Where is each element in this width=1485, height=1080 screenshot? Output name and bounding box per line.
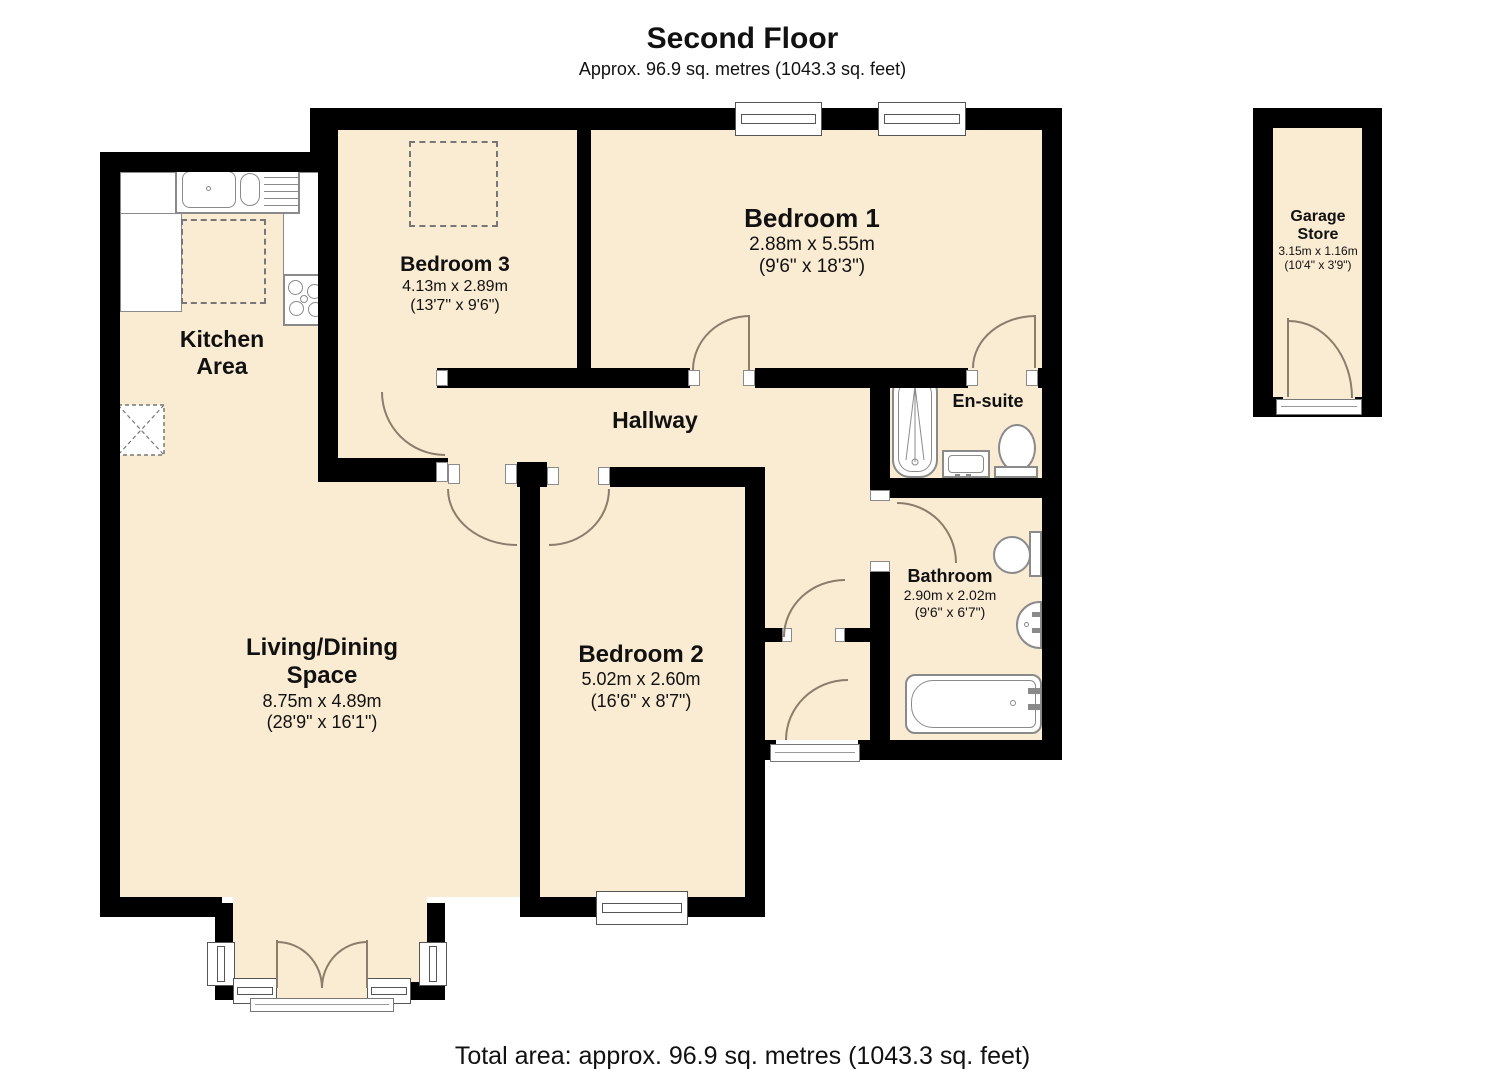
wall bbox=[591, 368, 690, 388]
room-name: Bedroom 3 bbox=[400, 253, 510, 278]
total-area-text: Total area: approx. 96.9 sq. metres (104… bbox=[0, 1042, 1485, 1071]
hob-burner-icon bbox=[289, 301, 304, 316]
sink-drainer-lines bbox=[264, 177, 298, 207]
room-dims-imperial: (13'7" x 9'6") bbox=[400, 297, 510, 316]
ensuite-bath-jets-icon bbox=[898, 380, 932, 472]
kitchen-label: Kitchen Area bbox=[180, 326, 264, 380]
entrance-threshold bbox=[770, 744, 860, 762]
door-jamb bbox=[1026, 370, 1038, 386]
room-dims-metric: 5.02m x 2.60m bbox=[578, 669, 703, 690]
bay-window bbox=[207, 942, 235, 986]
wall bbox=[318, 108, 338, 462]
door-jamb bbox=[743, 370, 755, 386]
tub-drain-icon bbox=[1010, 700, 1016, 706]
window-glazing bbox=[217, 946, 225, 983]
kitchen-dashed-unit bbox=[181, 219, 266, 304]
wall bbox=[870, 563, 890, 760]
hob-burner-icon bbox=[288, 280, 303, 295]
bay-door-threshold bbox=[250, 998, 394, 1012]
bathroom-door-gap bbox=[866, 500, 892, 563]
hob-center-icon bbox=[300, 295, 308, 303]
tap-icon bbox=[1028, 704, 1040, 710]
wall bbox=[845, 628, 870, 642]
room-name: Kitchen bbox=[180, 326, 264, 353]
living-label: Living/Dining Space 8.75m x 4.89m (28'9"… bbox=[246, 634, 398, 733]
bedroom1-label: Bedroom 1 2.88m x 5.55m (9'6" x 18'3") bbox=[744, 203, 880, 278]
door-jamb bbox=[870, 561, 890, 572]
room-name: En-suite bbox=[952, 391, 1023, 412]
door-jamb bbox=[505, 464, 517, 484]
wall bbox=[870, 368, 890, 500]
room-name: Bedroom 2 bbox=[578, 641, 703, 669]
door-jamb bbox=[448, 464, 460, 484]
window-glazing bbox=[429, 946, 437, 983]
wall bbox=[437, 368, 577, 388]
wall bbox=[890, 478, 1042, 498]
wall bbox=[765, 628, 782, 642]
sink-drain-icon bbox=[206, 186, 211, 191]
ensuite-toilet-bowl bbox=[998, 424, 1036, 472]
wall bbox=[100, 152, 330, 172]
garage-threshold bbox=[1276, 399, 1362, 415]
window-glazing bbox=[884, 114, 960, 124]
ensuite-basin-bowl bbox=[948, 455, 984, 473]
room-dims-metric: 2.90m x 2.02m bbox=[904, 587, 997, 604]
room-dims-imperial: (16'6" x 8'7") bbox=[578, 691, 703, 712]
sink-basin-small bbox=[240, 173, 260, 206]
room-dims-metric: 2.88m x 5.55m bbox=[744, 234, 880, 256]
bathroom-tub-inner bbox=[911, 680, 1036, 728]
wall bbox=[100, 152, 120, 917]
bedroom3-label: Bedroom 3 4.13m x 2.89m (13'7" x 9'6") bbox=[400, 253, 510, 316]
wall bbox=[610, 467, 755, 487]
window-glazing bbox=[602, 903, 681, 913]
ensuite-label: En-suite bbox=[952, 391, 1023, 412]
window bbox=[878, 102, 966, 136]
room-dims-imperial: (9'6" x 6'7") bbox=[904, 604, 997, 621]
room-dims-metric: 8.75m x 4.89m bbox=[246, 691, 398, 712]
wall bbox=[745, 467, 765, 917]
room-dims-metric: 4.13m x 2.89m bbox=[400, 278, 510, 297]
wall bbox=[318, 458, 448, 482]
room-name: Hallway bbox=[612, 407, 698, 434]
room-name: Store bbox=[1278, 226, 1357, 244]
bathroom-label: Bathroom 2.90m x 2.02m (9'6" x 6'7") bbox=[904, 566, 997, 620]
door-jamb bbox=[436, 370, 448, 386]
door-jamb bbox=[688, 370, 700, 386]
room-name: Garage bbox=[1278, 208, 1357, 226]
room-dims-imperial: (9'6" x 18'3") bbox=[744, 256, 880, 278]
wall bbox=[1042, 108, 1062, 760]
window bbox=[735, 102, 822, 136]
door-jamb bbox=[870, 490, 890, 501]
wall bbox=[100, 897, 222, 917]
room-name: Area bbox=[180, 353, 264, 380]
room-name: Bathroom bbox=[904, 566, 997, 587]
wall bbox=[755, 368, 968, 388]
room-dims-imperial: (10'4" x 3'9") bbox=[1278, 259, 1357, 273]
door-jamb bbox=[966, 370, 978, 386]
door-jamb bbox=[436, 462, 448, 482]
room-name: Bedroom 1 bbox=[744, 203, 880, 234]
tap-icon bbox=[1028, 688, 1040, 694]
floor-plan-page: Second Floor Approx. 96.9 sq. metres (10… bbox=[0, 0, 1485, 1080]
basin-drain-icon bbox=[1024, 622, 1029, 627]
room-name: Space bbox=[246, 662, 398, 690]
bathroom-toilet-bowl bbox=[993, 536, 1031, 574]
wall bbox=[520, 462, 540, 917]
page-title: Second Floor bbox=[0, 22, 1485, 56]
door-jamb bbox=[547, 467, 559, 485]
room-name: Living/Dining bbox=[246, 634, 398, 662]
room-dims-imperial: (28'9" x 16'1") bbox=[246, 712, 398, 733]
window-glazing bbox=[371, 987, 408, 994]
room-dims-metric: 3.15m x 1.16m bbox=[1278, 245, 1357, 259]
window-glazing bbox=[741, 114, 816, 124]
window bbox=[596, 891, 688, 925]
page-subtitle: Approx. 96.9 sq. metres (1043.3 sq. feet… bbox=[0, 59, 1485, 80]
hallway-label: Hallway bbox=[612, 407, 698, 434]
bedroom2-label: Bedroom 2 5.02m x 2.60m (16'6" x 8'7") bbox=[578, 641, 703, 712]
wall bbox=[577, 108, 591, 388]
boiler-x-icon bbox=[117, 404, 165, 456]
garage-label: Garage Store 3.15m x 1.16m (10'4" x 3'9"… bbox=[1278, 208, 1357, 272]
ensuite-toilet-base bbox=[994, 466, 1038, 478]
window-glazing bbox=[237, 987, 274, 994]
wall bbox=[1038, 368, 1052, 388]
door-jamb bbox=[598, 467, 610, 485]
bedroom3-dashed-unit bbox=[409, 141, 498, 227]
bay-window bbox=[419, 942, 447, 986]
